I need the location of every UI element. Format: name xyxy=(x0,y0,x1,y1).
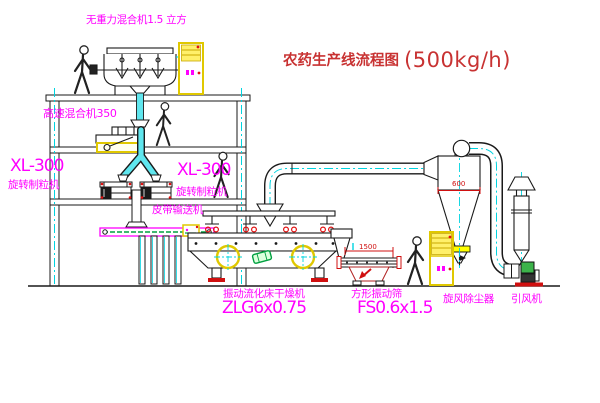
label-cyclone: 旋风除尘器 xyxy=(443,294,494,305)
cyclone-inlet-reducer xyxy=(424,156,438,180)
control-cabinet-cyclone xyxy=(430,232,453,285)
label-fan: 引风机 xyxy=(511,294,542,305)
label-dryer-model: ZLG6x0.75 xyxy=(222,300,306,317)
person-ground xyxy=(408,237,423,284)
title-capacity: (500kg/h) xyxy=(404,48,511,72)
conveyor-supports xyxy=(139,236,181,284)
granulator-right xyxy=(140,182,172,199)
label-high-speed-mixer: 高速混合机350 xyxy=(43,108,117,119)
induced-draft-fan xyxy=(504,262,543,287)
pesticide-line-flow-diagram: 无重力混合机1.5 立方 农药生产线流程图 (500kg/h) 高速混合机350… xyxy=(0,0,600,403)
label-gravity-mixer: 无重力混合机1.5 立方 xyxy=(86,15,186,26)
title-text: 农药生产线流程图 xyxy=(283,53,399,69)
vent-cap xyxy=(508,177,535,190)
dimension-sieve-1500: 1500 xyxy=(359,244,377,251)
square-sieve xyxy=(337,247,401,285)
label-granulator-right-name: 旋转制粒机 xyxy=(176,187,227,198)
label-belt-conveyor: 皮带输送机 xyxy=(152,205,203,216)
label-granulator-left-name: 旋转制粒机 xyxy=(8,180,59,191)
gravity-mixer xyxy=(90,48,190,95)
diagram-title: 农药生产线流程图 (500kg/h) xyxy=(283,48,511,72)
fan-motor xyxy=(521,262,534,273)
dimension-cyclone-600: 600 xyxy=(452,181,465,188)
feed-chute xyxy=(137,92,144,123)
person-floor2 xyxy=(157,103,171,145)
label-sieve-model: FS0.6x1.5 xyxy=(357,300,432,317)
label-granulator-right-model: XL-300 xyxy=(177,162,230,179)
fluid-bed-dryer xyxy=(188,211,338,282)
control-cabinet-top xyxy=(179,43,203,94)
outlet-elbow-circle xyxy=(453,140,469,156)
exhaust-duct xyxy=(257,163,424,226)
fan-base xyxy=(515,283,543,287)
person-roof xyxy=(75,46,90,93)
label-granulator-left-model: XL-300 xyxy=(10,158,63,175)
granulator-left xyxy=(100,182,132,199)
